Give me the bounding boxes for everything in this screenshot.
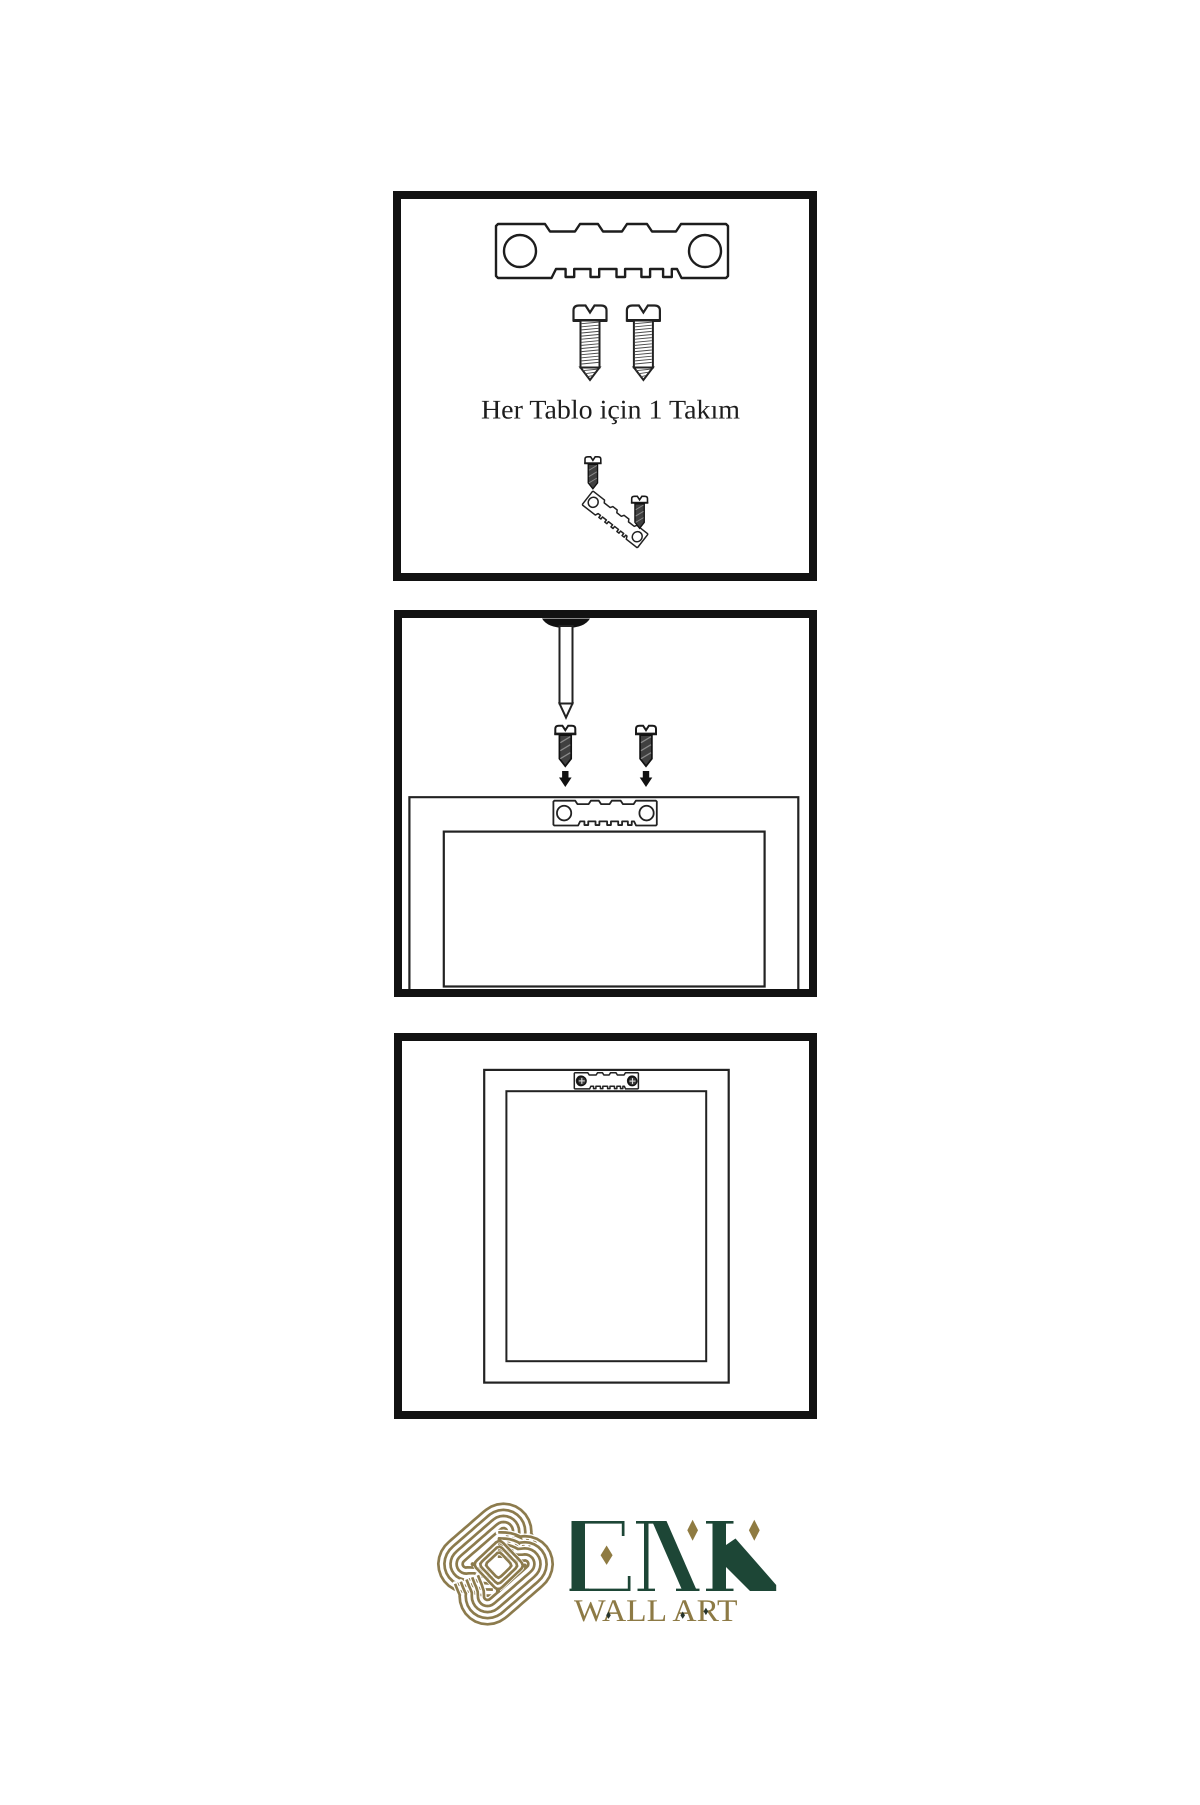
svg-text:WALL ART: WALL ART <box>574 1593 738 1628</box>
svg-text:Her Tablo için 1 Takım: Her Tablo için 1 Takım <box>481 395 740 425</box>
